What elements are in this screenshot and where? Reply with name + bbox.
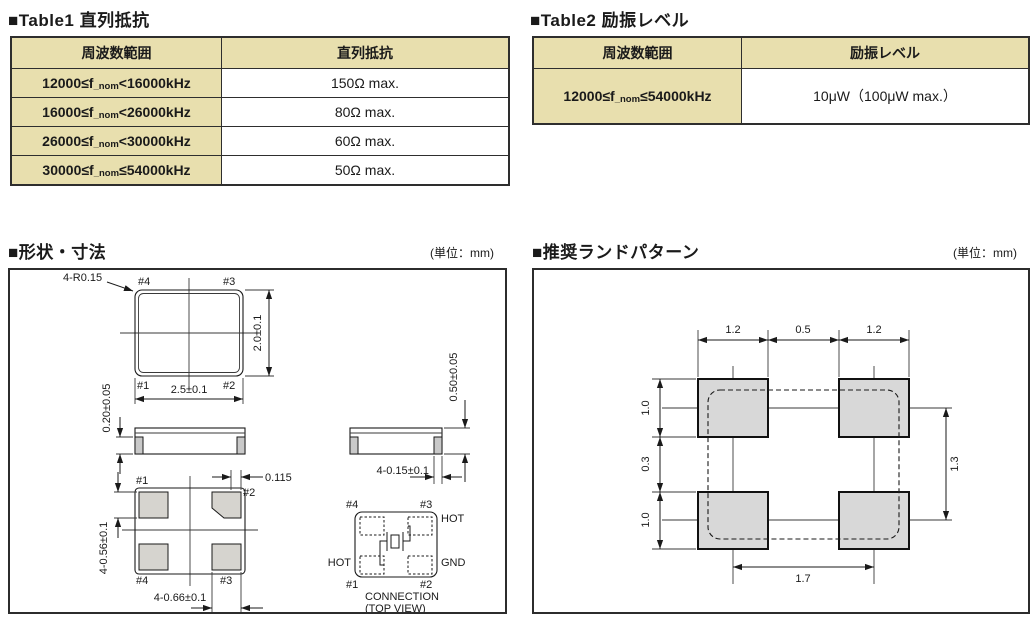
pad-width-dimension-label: 1.2: [725, 324, 740, 336]
land-pattern-section-title: ■推奨ランドパターン: [532, 238, 699, 263]
connection-pad-3: [408, 517, 432, 535]
range-text: 26000≤f: [42, 133, 93, 149]
range-text: <16000kHz: [119, 75, 191, 91]
drive-level-value-cell: 10μW（100μW max.）: [742, 69, 1028, 123]
pin-label: #1: [346, 579, 358, 591]
frequency-range-cell: 26000≤f_nom<30000kHz: [12, 127, 222, 155]
connection-pad-2: [408, 556, 432, 574]
table-row: 30000≤f_nom≤54000kHz 50Ω max.: [12, 155, 508, 184]
hot-label: HOT: [441, 513, 465, 525]
side-outline: [350, 428, 442, 454]
connection-wire: [403, 526, 410, 541]
land-pattern-panel: 1.2 0.5 1.2 1.0 0.3 1.0 1.3 1.7: [532, 268, 1030, 614]
range-text: 12000≤f: [42, 75, 93, 91]
frequency-range-cell: 12000≤f_nom≤54000kHz: [534, 69, 742, 123]
table-row: 16000≤f_nom<26000kHz 80Ω max.: [12, 97, 508, 126]
side-outline: [135, 428, 245, 454]
pin-label: #3: [223, 276, 235, 288]
thickness-dimension-label: 0.20±0.05: [101, 384, 113, 433]
dimensions-section-title: ■形状・寸法: [8, 238, 106, 263]
pad-4: [139, 544, 168, 570]
resistance-value-cell: 80Ω max.: [222, 98, 508, 126]
table-row: 26000≤f_nom<30000kHz 60Ω max.: [12, 126, 508, 155]
land-pattern: 1.2 0.5 1.2 1.0 0.3 1.0 1.3 1.7: [640, 324, 961, 585]
package-top-view: #4 #3 #1 #2 4-R0.15 2.5±0.1 2.0±0.1: [63, 272, 274, 404]
range-text: 30000≤f: [42, 162, 93, 178]
resistance-value-cell: 150Ω max.: [222, 69, 508, 97]
pad-height-dimension-label: 1.0: [640, 512, 652, 527]
pin-label: #4: [346, 499, 358, 511]
dimensions-unit-label: (単位：mm): [430, 244, 494, 261]
end-cap: [434, 437, 442, 454]
land-pattern-drawing: 1.2 0.5 1.2 1.0 0.3 1.0 1.3 1.7: [534, 270, 1028, 612]
pad-1: [139, 492, 168, 518]
cap-dimension-label: 4-0.15±0.1: [376, 465, 429, 477]
range-subscript: _nom: [93, 110, 118, 121]
pin-label: #1: [137, 380, 149, 392]
pad-height-dimension-label: 4-0.56±0.1: [98, 522, 110, 575]
frequency-range-cell: 16000≤f_nom<26000kHz: [12, 98, 222, 126]
width-dimension-label: 2.5±0.1: [171, 384, 208, 396]
pin-label: #2: [420, 579, 432, 591]
range-text: 16000≤f: [42, 104, 93, 120]
pin-label: #2: [223, 380, 235, 392]
offset-dimension-label: 0.115: [265, 472, 292, 484]
package-bottom-view: #1 #2 #4 #3 0.115 4-0.56±0.1 4-0.66±0.1: [98, 470, 292, 612]
package-side-view-left: 0.20±0.05: [101, 384, 245, 474]
pin-label: #3: [420, 499, 432, 511]
range-subscript: _nom: [93, 81, 118, 92]
frequency-range-cell: 30000≤f_nom≤54000kHz: [12, 156, 222, 184]
pad-width-dimension-label: 1.2: [866, 324, 881, 336]
pin-label: #3: [220, 575, 232, 587]
vertical-pitch-dimension-label: 1.3: [949, 456, 961, 471]
range-subscript: _nom: [615, 94, 640, 105]
table1-header-row: 周波数範囲 直列抵抗: [12, 38, 508, 68]
pin-label: #2: [243, 487, 255, 499]
table1-header-frequency-range: 周波数範囲: [12, 38, 222, 68]
range-subscript: _nom: [93, 139, 118, 150]
table2-header-frequency-range: 周波数範囲: [534, 38, 742, 68]
end-cap: [237, 437, 245, 454]
range-text: <26000kHz: [119, 104, 191, 120]
connection-caption: CONNECTION: [365, 591, 439, 603]
connection-outline: [355, 512, 437, 577]
leader-line: [107, 282, 133, 291]
pin-label: #4: [138, 276, 150, 288]
pad-width-dimension-label: 4-0.66±0.1: [154, 592, 207, 604]
pin-label: #4: [136, 575, 148, 587]
dimensions-drawing: #4 #3 #1 #2 4-R0.15 2.5±0.1 2.0±0.1 0.20…: [10, 270, 505, 612]
horizontal-pitch-dimension-label: 1.7: [795, 573, 810, 585]
gap-dimension-label: 0.3: [640, 456, 652, 471]
connection-caption: (TOP VIEW): [365, 603, 426, 612]
resistance-value-cell: 60Ω max.: [222, 127, 508, 155]
table1-title: ■Table1 直列抵抗: [8, 6, 150, 31]
pad-3: [212, 544, 241, 570]
range-subscript: _nom: [94, 168, 119, 179]
gap-dimension-label: 0.5: [795, 324, 810, 336]
range-text: <30000kHz: [119, 133, 191, 149]
range-text: 12000≤f: [563, 88, 614, 104]
pin-label: #1: [136, 475, 148, 487]
table-row: 12000≤f_nom≤54000kHz 10μW（100μW max.）: [534, 68, 1028, 123]
table1-header-series-resistance: 直列抵抗: [222, 38, 508, 68]
height-dimension-label: 0.50±0.05: [448, 353, 460, 402]
connection-diagram: #4 #3 HOT HOT GND #1 #2 CONNECTION (TOP …: [328, 499, 466, 612]
pad-height-dimension-label: 1.0: [640, 400, 652, 415]
range-text: ≤54000kHz: [119, 162, 191, 178]
datasheet-page: { "table1": { "title": "■Table1 直列抵抗", "…: [0, 0, 1032, 622]
table-row: 12000≤f_nom<16000kHz 150Ω max.: [12, 68, 508, 97]
range-text: ≤54000kHz: [640, 88, 712, 104]
end-cap: [135, 437, 143, 454]
table2-header-row: 周波数範囲 励振レベル: [534, 38, 1028, 68]
gnd-label: GND: [441, 557, 466, 569]
resistance-value-cell: 50Ω max.: [222, 156, 508, 184]
frequency-range-cell: 12000≤f_nom<16000kHz: [12, 69, 222, 97]
hot-label: HOT: [328, 557, 352, 569]
height-dimension-label: 2.0±0.1: [252, 315, 264, 352]
connection-pad-4: [360, 517, 384, 535]
table2: 周波数範囲 励振レベル 12000≤f_nom≤54000kHz 10μW（10…: [532, 36, 1030, 125]
table2-title: ■Table2 励振レベル: [530, 6, 689, 31]
end-cap: [350, 437, 358, 454]
land-pattern-unit-label: (単位：mm): [953, 244, 1017, 261]
crystal-symbol: [391, 535, 399, 548]
corner-radius-label: 4-R0.15: [63, 272, 102, 284]
dimensions-drawing-panel: #4 #3 #1 #2 4-R0.15 2.5±0.1 2.0±0.1 0.20…: [8, 268, 507, 614]
table1: 周波数範囲 直列抵抗 12000≤f_nom<16000kHz 150Ω max…: [10, 36, 510, 186]
pad-2-chamfered: [212, 492, 241, 518]
table2-header-drive-level: 励振レベル: [742, 38, 1028, 68]
package-side-view-right: 0.50±0.05 4-0.15±0.1: [350, 353, 470, 484]
